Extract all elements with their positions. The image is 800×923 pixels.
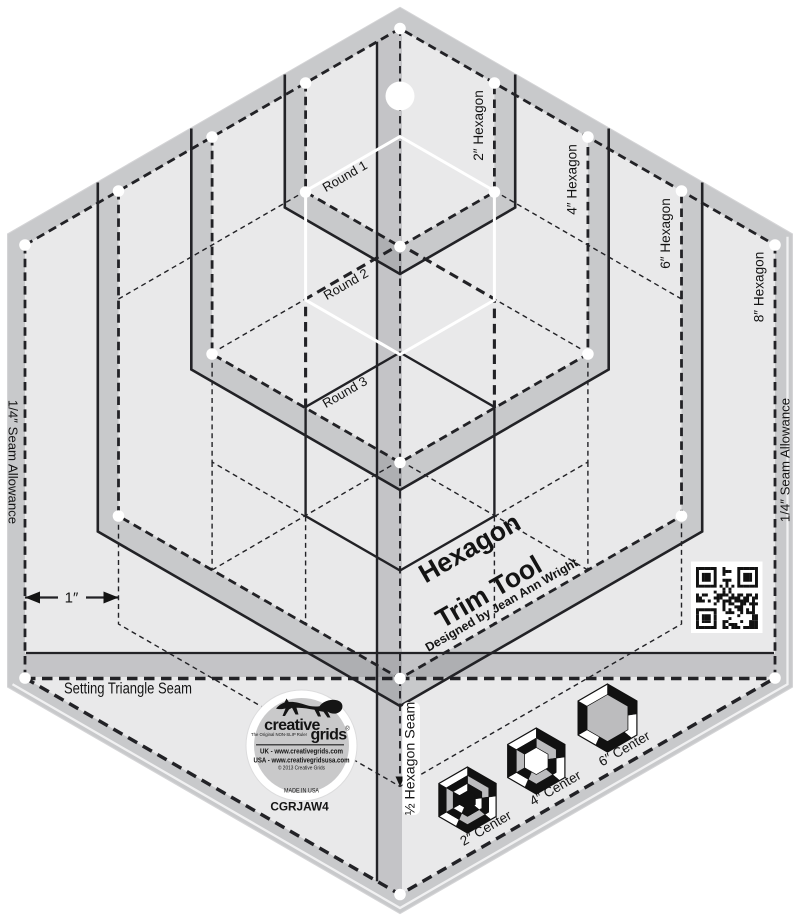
svg-text:2″ Hexagon: 2″ Hexagon — [471, 90, 486, 161]
svg-text:MADE IN USA: MADE IN USA — [284, 788, 320, 795]
svg-text:© 2013 Creative Grids: © 2013 Creative Grids — [278, 765, 325, 772]
svg-text:1/4″ Seam Allowance: 1/4″ Seam Allowance — [778, 398, 793, 522]
svg-text:1/4″ Seam Allowance: 1/4″ Seam Allowance — [6, 400, 21, 524]
svg-text:4″ Hexagon: 4″ Hexagon — [565, 144, 580, 215]
svg-text:UK - www.creativegrids.com: UK - www.creativegrids.com — [260, 747, 343, 756]
svg-text:USA - www.creativegridsusa.com: USA - www.creativegridsusa.com — [254, 756, 350, 765]
svg-text:grids: grids — [310, 727, 347, 744]
svg-text:The Original NON-SLIP Ruler: The Original NON-SLIP Ruler — [251, 732, 307, 737]
svg-text:®: ® — [345, 726, 350, 733]
svg-text:Setting Triangle Seam: Setting Triangle Seam — [64, 681, 192, 698]
svg-text:6″ Hexagon: 6″ Hexagon — [658, 198, 673, 269]
svg-text:CGRJAW4: CGRJAW4 — [270, 800, 329, 814]
svg-text:8″ Hexagon: 8″ Hexagon — [752, 252, 767, 323]
svg-text:½ Hexagon Seam: ½ Hexagon Seam — [403, 702, 419, 816]
svg-text:1″: 1″ — [65, 590, 79, 607]
